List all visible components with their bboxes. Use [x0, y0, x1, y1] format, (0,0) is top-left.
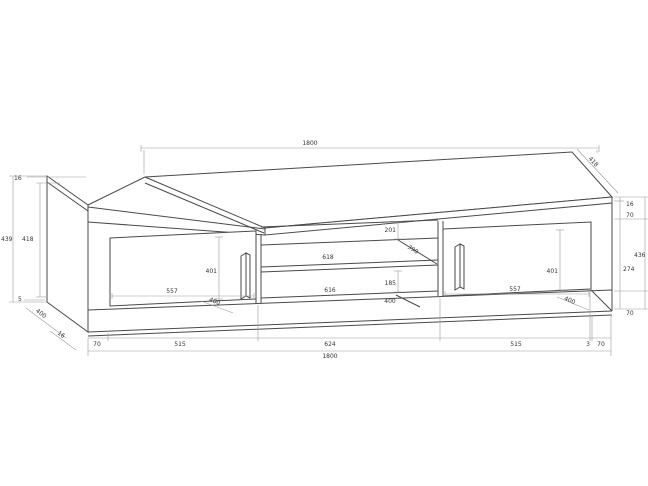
dim-label-bottom-seg-1: 70	[93, 341, 101, 348]
dim-label-niche-shelf-width: 618	[322, 254, 334, 261]
dim-label-niche-lower-opening: 185	[385, 280, 397, 287]
right-door	[443, 222, 591, 296]
dim-label-right-lower: 70	[626, 310, 634, 317]
dim-label-bottom-seg-2: 515	[174, 341, 186, 348]
dim-label-left-door-height: 401	[206, 268, 218, 275]
dim-label-top-depth: 418	[587, 155, 600, 168]
dim-label-left-door-width: 557	[166, 288, 178, 295]
cabinet-top-panel	[88, 152, 612, 235]
dim-label-bottom-seg-3: 624	[324, 341, 336, 348]
left-door	[110, 231, 256, 306]
dim-label-right-upper: 70	[626, 212, 634, 219]
dim-label-niche-bottom-depth: 400	[384, 298, 396, 305]
dim-label-right-outer-height: 436	[634, 252, 646, 259]
dim-label-right-door-depth: 400	[563, 295, 576, 306]
dim-label-top-width: 1800	[302, 140, 317, 147]
dim-right-stack: 16 70 274 436 70	[614, 197, 648, 317]
dim-label-left-bottom-gap: 5	[18, 296, 22, 303]
dim-label-right-top-thickness: 16	[626, 201, 634, 208]
dim-label-niche-upper-opening: 201	[385, 227, 397, 234]
drawing-canvas: 1800 418 16 439 418 5 400 16 16 70 274	[0, 0, 648, 486]
dim-label-bottom-total: 1800	[322, 353, 337, 360]
dim-label-bottom-seg-4: 515	[510, 341, 522, 348]
dim-label-right-door-height: 401	[547, 268, 559, 275]
dim-label-bottom-seg-6: 70	[597, 341, 605, 348]
dim-label-niche-shelf-depth: 390	[406, 244, 420, 256]
dim-label-niche-lower-width: 616	[324, 287, 336, 294]
technical-drawing: 1800 418 16 439 418 5 400 16 16 70 274	[0, 0, 648, 486]
dim-label-bottom-seg-5: 3	[586, 341, 590, 348]
right-door-handle	[455, 244, 464, 290]
dim-label-left-depth: 400	[34, 308, 48, 321]
dim-label-left-top-thickness: 16	[14, 175, 22, 182]
dim-label-left-inner-height: 418	[22, 236, 34, 243]
dim-label-left-outer-height: 439	[1, 236, 13, 243]
dim-label-right-middle: 274	[623, 266, 635, 273]
left-door-handle	[241, 253, 250, 299]
dim-label-right-door-width: 557	[509, 286, 521, 293]
